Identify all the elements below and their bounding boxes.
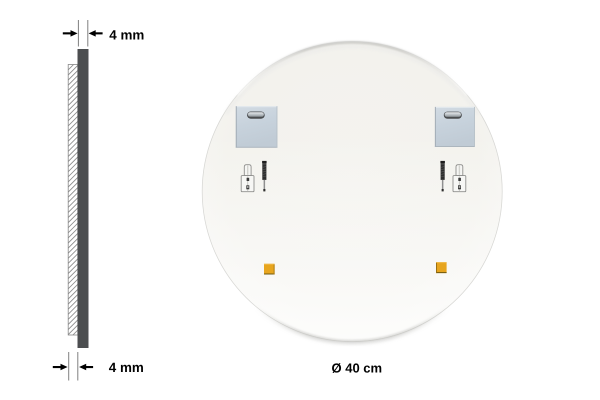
svg-text:Ø 40 cm: Ø 40 cm bbox=[332, 361, 383, 376]
svg-text:4 mm: 4 mm bbox=[109, 27, 144, 42]
svg-text:4 mm: 4 mm bbox=[109, 360, 144, 375]
